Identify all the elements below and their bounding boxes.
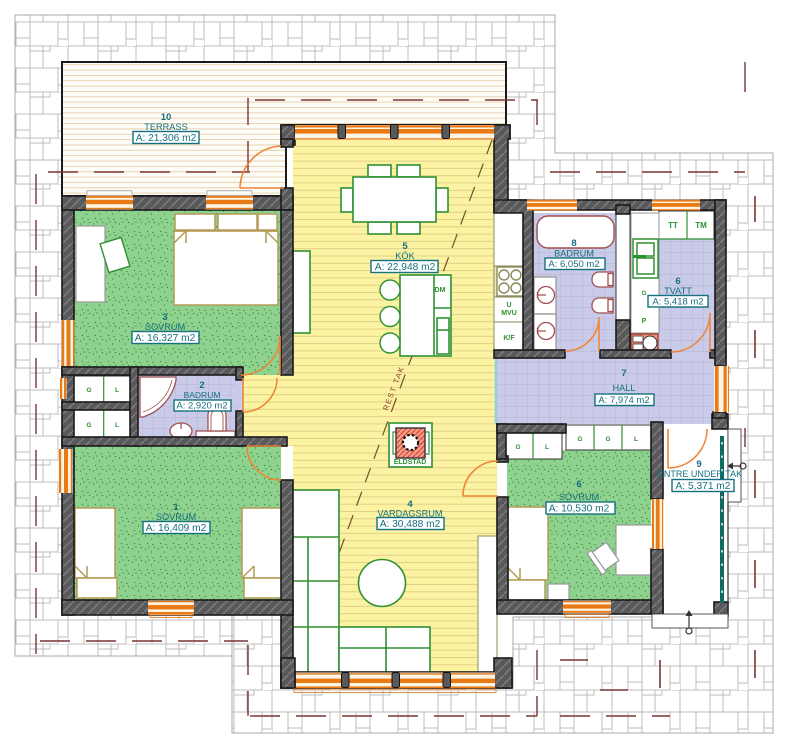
svg-text:6: 6 [576, 479, 581, 490]
svg-text:G: G [641, 290, 646, 297]
svg-text:G: G [605, 436, 610, 443]
svg-text:G: G [515, 444, 520, 451]
svg-text:ENTRE UNDER TAK: ENTRE UNDER TAK [658, 469, 742, 479]
svg-text:TVATT: TVATT [664, 286, 692, 296]
svg-text:A: 7,974 m2: A: 7,974 m2 [598, 395, 649, 406]
svg-text:7: 7 [621, 368, 626, 379]
svg-text:A: 16,327 m2: A: 16,327 m2 [135, 333, 196, 344]
svg-text:HALL: HALL [613, 383, 636, 393]
svg-text:TT: TT [668, 221, 678, 230]
svg-text:L: L [115, 387, 119, 394]
svg-text:KÖK: KÖK [395, 251, 415, 261]
svg-text:TERRASS: TERRASS [144, 122, 187, 132]
svg-text:SOVRUM: SOVRUM [156, 512, 196, 522]
svg-text:G: G [86, 387, 91, 394]
svg-text:G: G [577, 436, 582, 443]
svg-text:A: 22,948 m2: A: 22,948 m2 [375, 262, 436, 273]
svg-text:L: L [115, 422, 119, 429]
svg-text:G: G [86, 422, 91, 429]
svg-text:MVU: MVU [501, 310, 517, 317]
svg-text:A: 2,920 m2: A: 2,920 m2 [176, 401, 227, 412]
svg-text:L: L [545, 444, 549, 451]
svg-text:A: 30,488 m2: A: 30,488 m2 [380, 519, 441, 530]
svg-text:SOVRUM: SOVRUM [559, 492, 599, 502]
svg-text:BADRUM: BADRUM [184, 390, 221, 400]
svg-text:A: 10,530 m2: A: 10,530 m2 [549, 504, 610, 515]
svg-text:BADRUM: BADRUM [554, 249, 594, 259]
svg-text:8: 8 [571, 238, 576, 249]
svg-text:A: 16,409 m2: A: 16,409 m2 [146, 523, 207, 534]
svg-text:U: U [506, 302, 511, 309]
svg-text:TM: TM [695, 221, 707, 230]
svg-text:SOVRUM: SOVRUM [145, 322, 185, 332]
svg-text:A: 5,418 m2: A: 5,418 m2 [652, 297, 703, 308]
svg-text:K/F: K/F [503, 335, 515, 342]
svg-text:DM: DM [435, 287, 446, 294]
svg-text:A: 21,306 m2: A: 21,306 m2 [136, 133, 197, 144]
svg-text:A: 5,371 m2: A: 5,371 m2 [676, 481, 731, 492]
svg-text:A: 6,050 m2: A: 6,050 m2 [548, 259, 599, 270]
svg-text:ELDSTAD: ELDSTAD [394, 459, 427, 466]
svg-text:L: L [634, 436, 638, 443]
svg-text:P: P [642, 318, 647, 325]
